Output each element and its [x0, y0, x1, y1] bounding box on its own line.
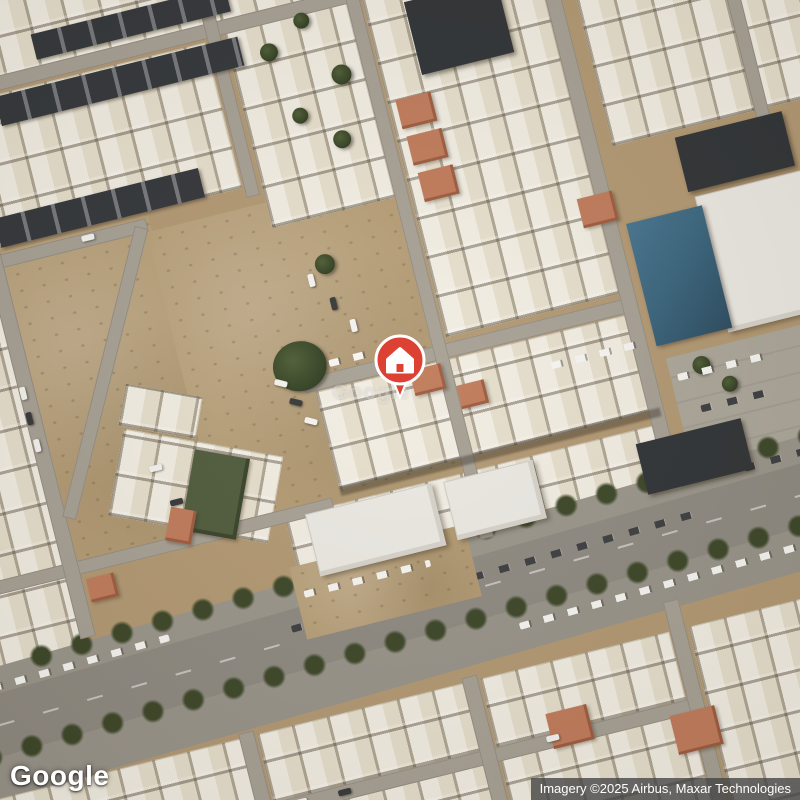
map-attribution: Imagery ©2025 Airbus, Maxar Technologies — [531, 778, 800, 800]
terracotta-roof — [86, 573, 119, 603]
google-logo[interactable]: Google — [10, 760, 109, 792]
location-marker[interactable] — [368, 331, 432, 401]
map-viewport[interactable]: Google Google Imagery ©2025 Airbus, Maxa… — [0, 0, 800, 800]
house-door — [397, 364, 404, 372]
